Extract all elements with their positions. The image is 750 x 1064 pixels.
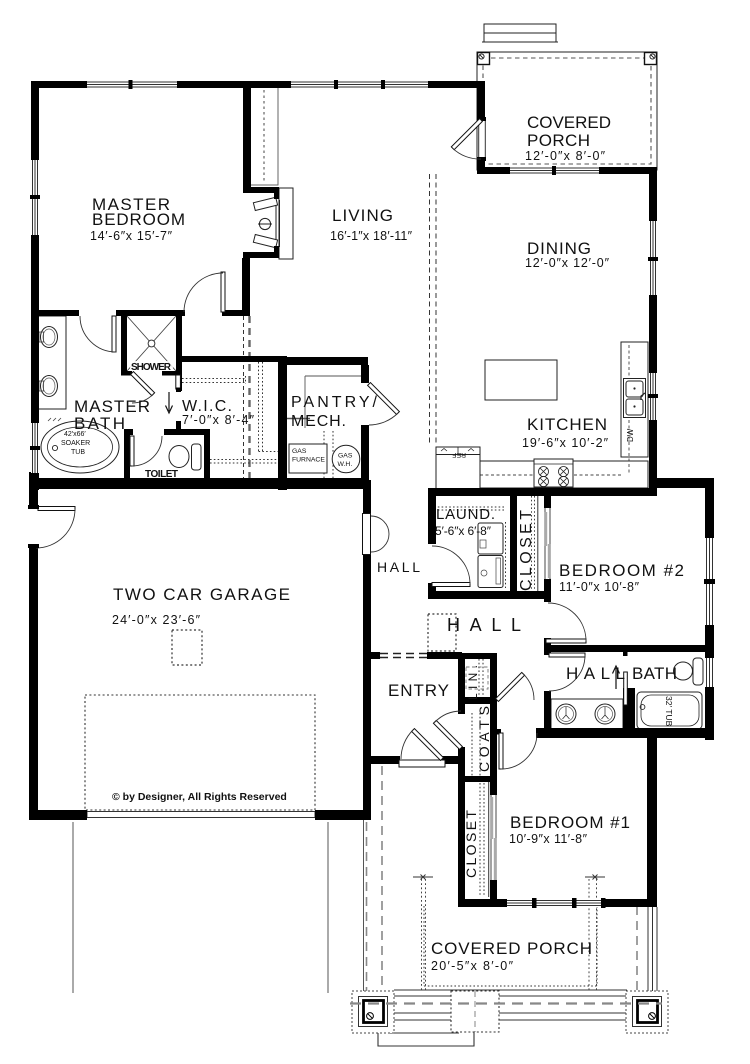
svg-text:LAUND.: LAUND. bbox=[436, 506, 495, 523]
svg-text:PORCH: PORCH bbox=[527, 131, 590, 150]
svg-text:12′-0″x 8′-0″: 12′-0″x 8′-0″ bbox=[525, 149, 606, 163]
svg-text:© by Designer, All Rights Rese: © by Designer, All Rights Reserved bbox=[112, 791, 287, 803]
svg-text:GAS: GAS bbox=[292, 448, 307, 455]
svg-text:COATS: COATS bbox=[476, 706, 492, 772]
svg-text:COVERED PORCH: COVERED PORCH bbox=[431, 939, 592, 958]
svg-text:REF: REF bbox=[452, 451, 466, 458]
svg-text:19′-6″x 10′-2″: 19′-6″x 10′-2″ bbox=[522, 436, 609, 450]
svg-text:7′-0″x 8′-4″: 7′-0″x 8′-4″ bbox=[182, 413, 255, 427]
svg-text:ENTRY: ENTRY bbox=[388, 681, 449, 700]
svg-text:5′-6″x 6′-8″: 5′-6″x 6′-8″ bbox=[435, 524, 492, 538]
svg-text:HALL: HALL bbox=[377, 559, 420, 575]
svg-text:SHOWER: SHOWER bbox=[131, 362, 172, 373]
svg-text:32′ TUB: 32′ TUB bbox=[664, 696, 674, 727]
svg-text:20′-5″x 8′-0″: 20′-5″x 8′-0″ bbox=[431, 959, 514, 973]
svg-text:BATH: BATH bbox=[632, 664, 677, 683]
svg-text:16′-1″x 18′-11″: 16′-1″x 18′-11″ bbox=[330, 229, 413, 243]
svg-text:12′-0″x 12′-0″: 12′-0″x 12′-0″ bbox=[525, 256, 610, 270]
svg-text:BEDROOM: BEDROOM bbox=[92, 210, 185, 229]
svg-text:42′x66′: 42′x66′ bbox=[64, 431, 86, 438]
svg-text:PANTRY/: PANTRY/ bbox=[291, 394, 378, 411]
svg-text:11′-0″x 10′-8″: 11′-0″x 10′-8″ bbox=[559, 580, 640, 594]
svg-text:FURNACE: FURNACE bbox=[292, 457, 325, 464]
svg-text:LIVING: LIVING bbox=[332, 206, 393, 225]
svg-text:10′-9″x 11′-8″: 10′-9″x 11′-8″ bbox=[509, 832, 588, 846]
svg-text:GAS: GAS bbox=[338, 453, 353, 460]
svg-text:BEDROOM #1: BEDROOM #1 bbox=[510, 813, 630, 832]
svg-text:24′-0″x 23′-6″: 24′-0″x 23′-6″ bbox=[112, 613, 201, 627]
svg-text:W.H.: W.H. bbox=[338, 461, 353, 468]
svg-text:TUB: TUB bbox=[71, 449, 85, 456]
svg-text:BEDROOM #2: BEDROOM #2 bbox=[559, 561, 684, 580]
svg-text:KITCHEN: KITCHEN bbox=[527, 415, 607, 434]
svg-text:TOILET: TOILET bbox=[145, 469, 178, 480]
svg-text:DW: DW bbox=[626, 428, 635, 442]
svg-text:14′-6″x 15′-7″: 14′-6″x 15′-7″ bbox=[90, 229, 173, 243]
svg-text:SOAKER: SOAKER bbox=[61, 440, 90, 447]
svg-text:COVERED: COVERED bbox=[527, 113, 611, 132]
svg-text:MECH.: MECH. bbox=[291, 413, 346, 430]
svg-text:TWO CAR GARAGE: TWO CAR GARAGE bbox=[113, 585, 290, 604]
